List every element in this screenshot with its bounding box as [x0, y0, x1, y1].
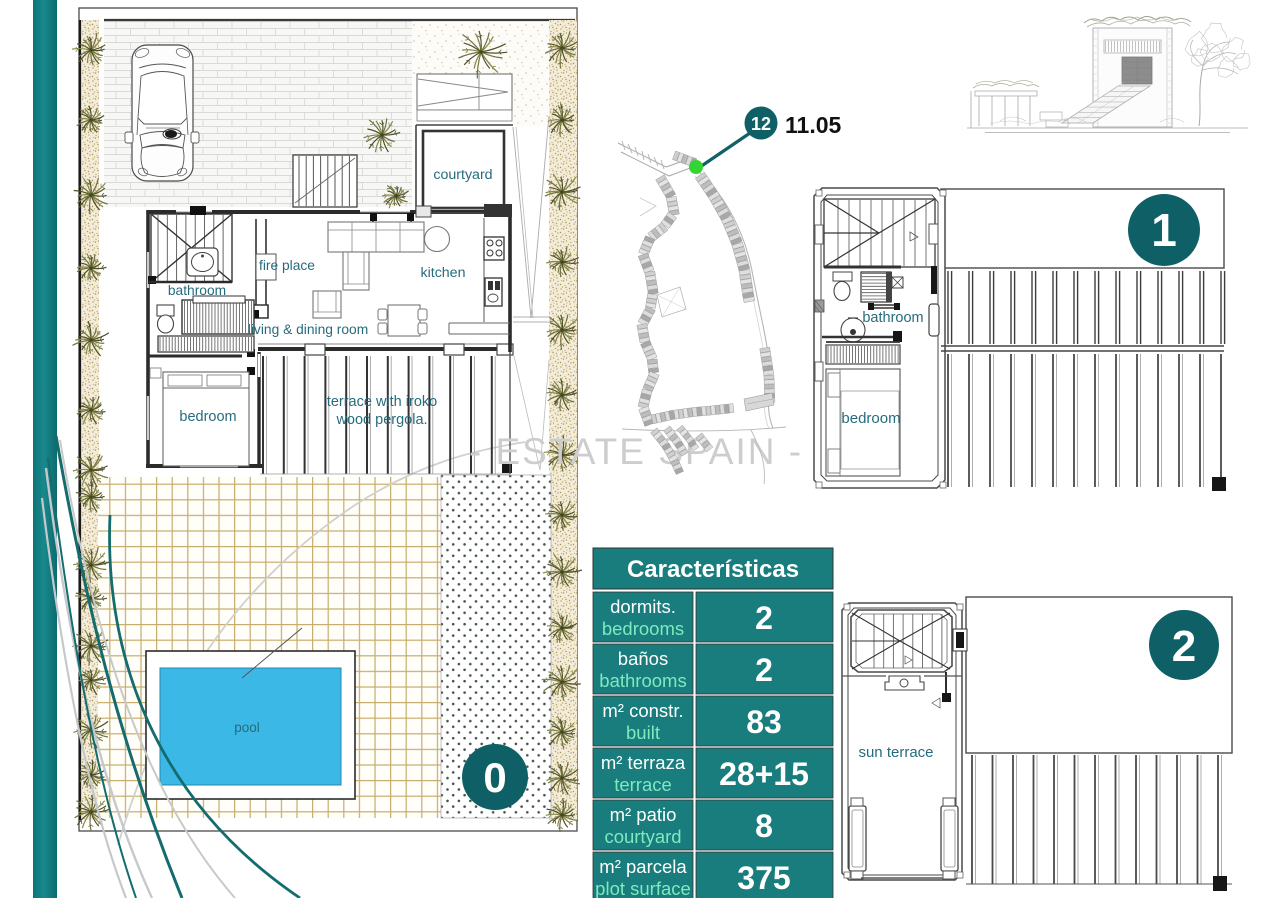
svg-text:bedroom: bedroom [841, 410, 900, 427]
svg-text:bedroom: bedroom [179, 409, 236, 425]
svg-text:terrace: terrace [614, 774, 672, 795]
svg-text:2: 2 [755, 600, 773, 636]
svg-text:m² terraza: m² terraza [601, 752, 686, 773]
svg-text:courtyard: courtyard [433, 167, 492, 183]
svg-text:wood pergola.: wood pergola. [335, 412, 427, 428]
svg-text:fire place: fire place [259, 258, 315, 273]
svg-text:bedrooms: bedrooms [602, 618, 684, 639]
svg-text:bathroom: bathroom [862, 310, 923, 326]
svg-text:terrace with iroko: terrace with iroko [327, 394, 437, 410]
svg-text:12: 12 [751, 114, 771, 134]
svg-text:pool: pool [234, 720, 260, 735]
svg-text:bathroom: bathroom [168, 283, 226, 298]
svg-text:sun terrace: sun terrace [858, 744, 933, 761]
svg-text:11.05: 11.05 [785, 112, 841, 138]
svg-text:8: 8 [755, 808, 773, 844]
svg-text:2: 2 [755, 652, 773, 688]
svg-text:baños: baños [618, 648, 668, 669]
svg-text:28+15: 28+15 [719, 756, 809, 792]
svg-text:kitchen: kitchen [421, 265, 466, 281]
svg-text:m² parcela: m² parcela [599, 856, 687, 877]
svg-text:m² constr.: m² constr. [602, 700, 683, 721]
svg-text:Características: Características [627, 556, 799, 583]
svg-text:375: 375 [737, 860, 790, 896]
svg-text:living & dining room: living & dining room [248, 322, 368, 337]
svg-text:plot surface: plot surface [595, 878, 691, 898]
svg-text:- ESTATE SPAIN -: - ESTATE SPAIN - [469, 431, 803, 472]
svg-text:courtyard: courtyard [604, 826, 681, 847]
svg-text:2: 2 [1172, 622, 1196, 671]
svg-text:0: 0 [483, 754, 506, 801]
svg-text:1: 1 [1151, 204, 1177, 256]
svg-text:83: 83 [746, 704, 782, 740]
svg-text:built: built [626, 722, 660, 743]
svg-text:bathrooms: bathrooms [599, 670, 686, 691]
svg-text:dormits.: dormits. [610, 596, 676, 617]
svg-text:m² patio: m² patio [610, 804, 677, 825]
